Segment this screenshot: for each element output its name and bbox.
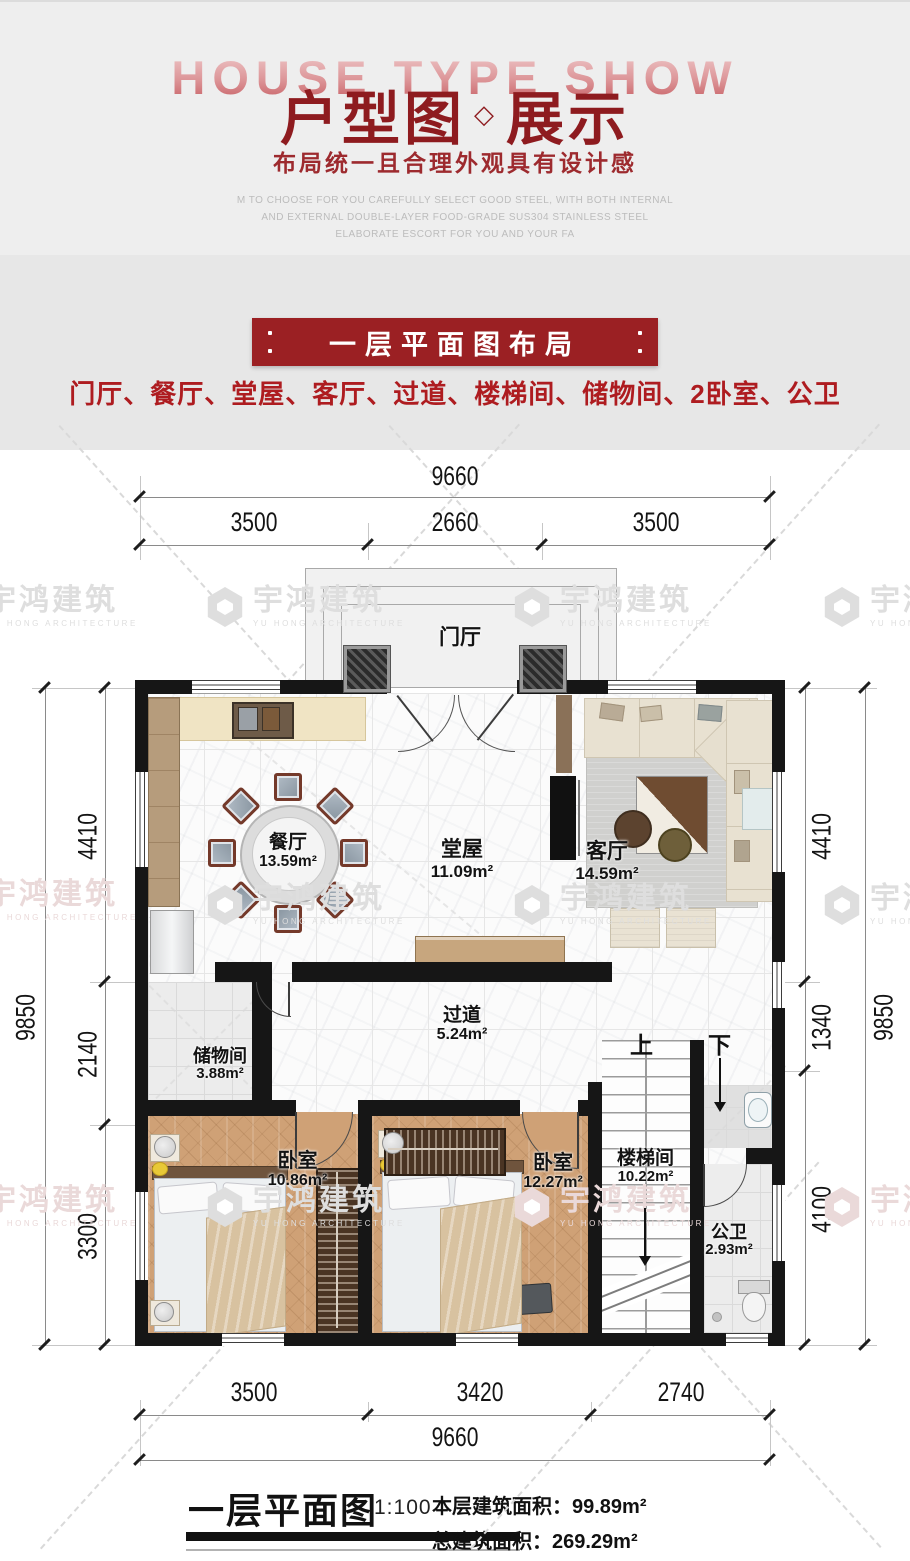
stair-up-label: 上 [630,1026,653,1060]
total-area-value: 269.29m² [552,1531,638,1553]
room-label-entry: 门厅 [410,626,510,650]
watermark: 宇鸿建筑YU HONG ARCHITECTURE [822,884,910,926]
room-label-hall: 堂屋 11.09m² [412,838,512,881]
wall [372,1100,520,1116]
banner-dot [268,331,272,335]
wall [358,1100,372,1333]
window [772,962,785,1008]
dim-bottom-seg3: 2740 [634,1377,728,1408]
floor-area-value: 99.89m² [572,1496,647,1518]
banner-dot [268,349,272,353]
dining-chair [274,905,302,933]
watermark-subtext: YU HONG ARCHITECTURE [0,913,138,922]
diamond-icon: ◇ [474,99,498,129]
room-area: 14.59m² [557,864,657,883]
wardrobe-divider [316,1168,362,1336]
fridge [150,910,194,974]
watermark-subtext: YU HONG ARCHITECTURE [870,1219,910,1228]
room-name: 储物间 [165,1046,275,1066]
wall [148,1100,296,1116]
room-name: 卧室 [498,1152,608,1174]
banner-dot [638,331,642,335]
dim-line [140,545,770,546]
down-arrow-line [719,1058,721,1104]
dim-line [140,497,770,498]
watermark-subtext: YU HONG ARCHITECTURE [0,1219,138,1228]
window [608,680,696,694]
watermark-subtext: YU HONG ARCHITECTURE [0,619,138,628]
wall [215,962,272,982]
storage-door-leaf [288,982,290,1016]
dim-bottom-seg1: 3500 [207,1377,301,1408]
washbasin-bowl [748,1098,768,1122]
dim-line [140,1415,770,1416]
banner-dot [638,349,642,353]
watermark-text: 宇鸿建筑 [870,1186,910,1216]
wardrobe-center-line [388,1148,498,1150]
stair-direction-head [639,1256,651,1266]
wall [746,1148,772,1164]
dim-right-seg2: 1340 [807,981,838,1075]
dining-chair [340,839,368,867]
ottoman [610,908,660,948]
header-subtitle: 布局统一且合理外观具有设计感 [0,144,910,178]
porch-column [520,646,566,692]
lamp [382,1132,404,1154]
dim-right-seg1: 4410 [807,790,838,884]
round-side-table [658,828,692,862]
watermark: 宇鸿建筑YU HONG ARCHITECTURE [822,586,910,628]
watermark-text: 宇鸿建筑 [0,1186,138,1216]
wall [292,962,612,982]
watermark-text: 宇鸿建筑 [0,586,138,616]
room-name: 餐厅 [243,832,333,853]
dim-line [105,688,106,1345]
room-label-dining: 餐厅 13.59m² [243,832,333,871]
watermark: 宇鸿建筑YU HONG ARCHITECTURE [0,586,138,628]
floor-drain [712,1312,722,1322]
lamp [154,1302,174,1322]
dim-top-seg1: 3500 [207,507,301,538]
watermark-subtext: YU HONG ARCHITECTURE [870,619,910,628]
dim-top-seg2: 2660 [408,507,502,538]
dim-left-seg3: 3300 [73,1190,104,1284]
stair-direction-line [644,1208,646,1258]
watermark-subtext: YU HONG ARCHITECTURE [870,917,910,926]
page-title-left: 户型图 [280,87,466,152]
room-area: 13.59m² [243,853,333,870]
room-name: 公卫 [684,1222,774,1242]
room-name: 卧室 [245,1150,350,1172]
section-banner: 一层平面图布局 [252,318,658,366]
room-area: 11.09m² [412,862,512,881]
room-area: 10.86m² [245,1172,350,1190]
dim-bottom-total: 9660 [408,1422,502,1453]
dim-line [865,688,866,1345]
room-label-corridor: 过道 5.24m² [412,1005,512,1044]
dim-left-seg2: 2140 [73,1008,104,1102]
total-area-label: 总建筑面积： [432,1531,552,1553]
bathroom-door-leaf [703,1164,705,1206]
dining-chair [274,773,302,801]
dim-right-outer: 9850 [869,971,900,1065]
stair-down-label: 下 [708,1026,731,1060]
dim-top-seg3: 3500 [609,507,703,538]
extension-line [32,1345,135,1346]
description-line-1: M TO CHOOSE FOR YOU CAREFULLY SELECT GOO… [0,192,910,209]
room-area: 5.24m² [412,1026,512,1044]
tv-cabinet [556,695,572,773]
watermark: 宇鸿建筑YU HONG ARCHITECTURE [0,1186,138,1228]
wall-cabinets [148,697,180,907]
yuhong-logo-icon [822,587,862,627]
dim-left-outer: 9850 [11,971,42,1065]
description-line-3: ELABORATE ESCORT FOR YOU AND YOUR FA [0,226,910,243]
top-edge-line [0,0,910,2]
room-name: 堂屋 [412,838,512,862]
toilet-bowl [742,1292,766,1322]
room-label-bedroom1: 卧室 10.86m² [245,1150,350,1190]
entry-label: 门厅 [410,626,510,650]
down-arrow-head [714,1102,726,1112]
dim-right-seg3: 4100 [807,1163,838,1257]
blanket [206,1206,286,1337]
sofa-pillow [599,702,625,721]
room-list-line: 门厅、餐厅、堂屋、客厅、过道、楼梯间、储物间、2卧室、公卫 [0,374,910,411]
watermark-text: 宇鸿建筑 [0,880,138,910]
pillow [157,1181,219,1214]
window [772,772,785,872]
dim-line [140,1460,770,1461]
window [222,1333,284,1346]
room-label-storage: 储物间 3.88m² [165,1046,275,1083]
legend-floor-area-row: 本层建筑面积：99.89m² [432,1490,647,1519]
floor-plan-poster: HOUSE TYPE SHOW 户型图◇展示 布局统一且合理外观具有设计感 M … [0,0,910,1561]
header-description: M TO CHOOSE FOR YOU CAREFULLY SELECT GOO… [0,192,910,243]
room-name: 客厅 [557,840,657,864]
extension-line [140,476,141,560]
blanket [440,1196,522,1337]
room-area: 2.93m² [684,1242,774,1259]
wardrobe-bedroom2 [384,1128,506,1176]
dim-line [45,688,46,1345]
description-line-2: AND EXTERNAL DOUBLE-LAYER FOOD-GRADE SUS… [0,209,910,226]
porch-column [344,646,390,692]
watermark-text: 宇鸿建筑 [870,586,910,616]
watermark: 宇鸿建筑YU HONG ARCHITECTURE [0,880,138,922]
dining-chair [208,839,236,867]
glass-side-table [742,788,774,830]
watermark-text: 宇鸿建筑 [870,884,910,914]
sofa-pillow [734,840,750,862]
console-detail [262,707,280,731]
room-label-living: 客厅 14.59m² [557,840,657,883]
extension-line [770,476,771,560]
window [192,680,280,694]
wardrobe-center-line [336,1172,338,1328]
section-banner-title: 一层平面图布局 [252,318,658,366]
yuhong-logo-icon [822,885,862,925]
legend-scale: 1:100 [374,1496,432,1520]
room-label-bedroom2: 卧室 12.27m² [498,1152,608,1192]
dim-top-total: 9660 [408,461,502,492]
room-area: 12.27m² [498,1174,608,1192]
flower-pot [152,1162,168,1176]
window [456,1333,518,1346]
room-label-stairs: 楼梯间 10.22m² [593,1148,698,1186]
extension-line [90,982,135,983]
lamp [154,1136,176,1158]
window [135,1192,148,1280]
legend-total-area-row: 总建筑面积：269.29m² [432,1525,638,1554]
wall [690,1040,704,1164]
legend-title: 一层平面图 [188,1482,378,1534]
room-area: 3.88m² [165,1066,275,1083]
window [135,772,148,867]
header-section: HOUSE TYPE SHOW 户型图◇展示 布局统一且合理外观具有设计感 M … [0,0,910,255]
extension-line [32,688,135,689]
room-name: 楼梯间 [593,1148,698,1169]
room-name: 过道 [412,1005,512,1026]
wall [588,1082,602,1333]
room-area: 10.22m² [593,1169,698,1186]
sofa-pillow [697,704,722,722]
dim-left-seg1: 4410 [73,790,104,884]
extension-line [90,1125,135,1126]
pillow [387,1176,451,1210]
room-label-bath: 公卫 2.93m² [684,1222,774,1259]
console-detail [238,707,258,731]
ottoman [666,908,716,948]
page-title-right: 展示 [506,87,630,152]
dim-bottom-seg2: 3420 [433,1377,527,1408]
window [726,1333,768,1346]
sofa-pillow [639,705,662,722]
